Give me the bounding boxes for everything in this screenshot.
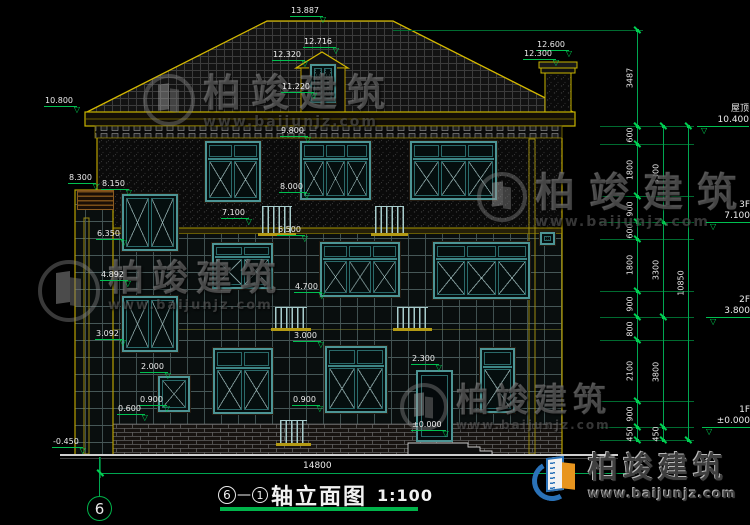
extension-line (393, 30, 643, 31)
dimension-dot (636, 143, 639, 146)
extension-line (600, 126, 694, 127)
dimension-value: 3487 (626, 68, 635, 88)
dimension-dot (636, 125, 639, 128)
dimension-chain-line (663, 126, 664, 440)
dimension-dot (662, 316, 665, 319)
window (212, 243, 273, 289)
window (122, 296, 178, 352)
elevation-annotation: 0.900 (292, 395, 320, 406)
dimension-chain-line (637, 126, 638, 440)
brand-name: 柏竣建筑 (588, 453, 737, 485)
elevation-annotation: -0.450 (52, 437, 83, 448)
railing (397, 307, 428, 328)
dimension-dot (636, 221, 639, 224)
elevation-annotation: 12.320 (272, 50, 305, 61)
dimension-chain-line (688, 126, 689, 440)
window (300, 141, 371, 200)
dimension-dot (662, 426, 665, 429)
axis-circle-end: 1 (252, 487, 268, 503)
floor-name: 3F (739, 200, 750, 211)
floor-elevation: 10.400 (718, 115, 750, 126)
floor-elevation: 7.100 (724, 211, 750, 222)
extension-line (600, 239, 694, 240)
dimension-value: 3300 (652, 164, 661, 184)
window (540, 232, 555, 245)
elevation-annotation: 4.892 (100, 270, 128, 281)
floor-level-label: 屋顶10.400 (697, 92, 749, 127)
elevation-annotation: 6.350 (96, 229, 124, 240)
dimension-value: 600 (626, 223, 635, 238)
elevation-annotation: 4.700 (294, 282, 322, 293)
extension-line (600, 440, 694, 441)
floor-level-label: 2F3.800 (706, 290, 750, 318)
extension-line (600, 401, 694, 402)
dimension-value: 3800 (652, 362, 661, 382)
floor-name: 1F (739, 405, 750, 416)
title-dash: — (237, 487, 251, 503)
floor-elevation: ±0.000 (717, 416, 750, 427)
dimension-value: 3300 (652, 259, 661, 279)
dimension-chain-line (637, 30, 638, 126)
dimension-dot (662, 125, 665, 128)
axis-circle-start: 6 (218, 486, 236, 504)
elevation-annotation: 3.092 (95, 329, 123, 340)
dimension-dot (687, 125, 690, 128)
dimension-value: 900 (626, 406, 635, 421)
dimension-value: 800 (626, 321, 635, 336)
dimension-dot (636, 195, 639, 198)
dimension-value: 10850 (677, 270, 686, 295)
elevation-annotation: 8.150 (101, 179, 129, 190)
floor-name: 屋顶 (731, 104, 749, 115)
window (325, 346, 387, 413)
extension-line (600, 144, 694, 145)
extension-line (600, 222, 694, 223)
elevation-annotation: 8.000 (279, 182, 307, 193)
extension-line (600, 427, 694, 428)
elevation-annotation: 13.887 (290, 6, 323, 17)
title-underline (220, 507, 418, 511)
dimension-dot (636, 439, 639, 442)
dimension-value: 600 (626, 127, 635, 142)
dimension-value: 900 (626, 201, 635, 216)
window (213, 348, 273, 414)
window (433, 242, 530, 299)
base-dimension-value: 14800 (303, 461, 332, 471)
window (320, 242, 400, 297)
dimension-dot (636, 29, 639, 32)
extension-line (600, 340, 694, 341)
dimension-dot (636, 400, 639, 403)
dimension-dot (636, 316, 639, 319)
louver-vent (77, 190, 114, 210)
elevation-annotation: 8.300 (68, 173, 96, 184)
elevation-annotation: 2.300 (411, 354, 439, 365)
elevation-annotation: 10.800 (44, 96, 77, 107)
floor-level-label: 3F7.100 (706, 194, 750, 223)
dimension-value: 1800 (626, 255, 635, 275)
dimension-value: 450 (626, 426, 635, 441)
brand-block: 柏竣建筑 www.baijunjz.com (532, 453, 737, 509)
floor-elevation: 3.800 (724, 306, 750, 317)
dimension-dot (636, 339, 639, 342)
dimension-value: 450 (652, 426, 661, 441)
brand-url: www.baijunjz.com (588, 487, 737, 502)
axis-bubble: 6 (87, 496, 112, 521)
elevation-annotation: 0.600 (117, 404, 145, 415)
window (410, 141, 497, 200)
railing (375, 206, 404, 233)
dimension-value: 900 (626, 296, 635, 311)
railing (275, 307, 307, 328)
elevation-annotation: 11.220 (281, 82, 314, 93)
title-scale: 1:100 (377, 486, 433, 505)
elevation-annotation: 9.800 (280, 126, 308, 137)
cad-elevation-canvas: 14800 6 6 — 1 轴立面图 1:100 柏竣建筑 www.baijun… (0, 0, 750, 525)
dimension-dot (636, 426, 639, 429)
elevation-annotation: ±0.000 (411, 420, 446, 431)
elevation-annotation: 3.000 (293, 331, 321, 342)
elevation-annotation: 2.000 (140, 362, 168, 373)
dimension-dot (687, 439, 690, 442)
window (122, 194, 178, 251)
dimension-dot (636, 290, 639, 293)
window (205, 141, 261, 202)
dimension-dot (662, 221, 665, 224)
brand-logo-icon (532, 453, 582, 509)
axis-line (99, 457, 100, 497)
dimension-value: 1800 (626, 160, 635, 180)
floor-level-label: 1F±0.000 (702, 400, 750, 428)
elevation-annotation: 12.300 (523, 49, 556, 60)
extension-line (600, 196, 694, 197)
extension-line (600, 317, 694, 318)
railing (280, 420, 307, 443)
elevation-annotation: 7.100 (221, 208, 249, 219)
floor-name: 2F (739, 295, 750, 306)
elevation-annotation: 12.716 (303, 37, 336, 48)
window (480, 348, 515, 413)
dimension-value: 2100 (626, 360, 635, 380)
elevation-annotation: 6.500 (277, 225, 305, 236)
dimension-dot (662, 439, 665, 442)
dimension-dot (636, 238, 639, 241)
